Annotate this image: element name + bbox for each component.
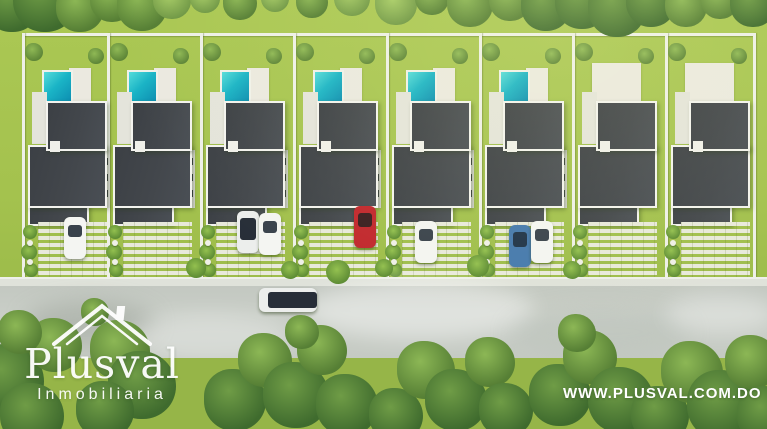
entry-step (135, 141, 145, 152)
car-white (415, 221, 437, 263)
stone (112, 240, 118, 246)
street-bush (326, 260, 350, 284)
lot-fence (753, 33, 756, 277)
palm-tree (203, 43, 221, 61)
stone (670, 259, 676, 265)
palm-tree (359, 48, 375, 64)
palm-tree (482, 43, 500, 61)
palm-tree (110, 43, 128, 61)
stone (27, 259, 33, 265)
logo-subtitle: Inmobiliaria (22, 386, 182, 404)
entry-step (693, 141, 703, 152)
bush (294, 225, 308, 239)
tree (465, 337, 515, 387)
bush (667, 263, 681, 277)
house-roof-lower (28, 145, 107, 208)
street-bush (375, 259, 393, 277)
aerial-render: Plusval Inmobiliaria WWW.PLUSVAL.COM.DO (0, 0, 767, 429)
entry-step (507, 141, 517, 152)
stone (577, 240, 583, 246)
car-glass (419, 229, 433, 242)
bush (24, 263, 38, 277)
lot-fence (572, 33, 575, 277)
tree (296, 0, 328, 18)
tree (447, 0, 493, 27)
tree (730, 0, 767, 27)
palm-tree (575, 43, 593, 61)
lot-fence (386, 33, 389, 277)
stone (670, 240, 676, 246)
house-roof-lower (299, 145, 378, 208)
bush (666, 225, 680, 239)
street-bush (186, 258, 206, 278)
cloud-shadow (305, 281, 535, 339)
car-white (259, 213, 281, 255)
palm-tree (638, 48, 654, 64)
tree (285, 315, 319, 349)
house-roof-lower (113, 145, 192, 208)
entry-step (414, 141, 424, 152)
side-patio (117, 92, 132, 144)
palm-tree (88, 48, 104, 64)
pool-deck (685, 63, 734, 101)
side-patio (210, 92, 225, 144)
street-bush (563, 261, 581, 279)
bush (571, 244, 587, 260)
entry-step (50, 141, 60, 152)
car-glass (535, 229, 549, 242)
stone (205, 259, 211, 265)
palm-tree (452, 48, 468, 64)
tree (375, 0, 417, 25)
car-white-glass (259, 288, 317, 312)
stone (298, 240, 304, 246)
car-glass (240, 218, 255, 240)
palm-tree (545, 48, 561, 64)
side-patio (675, 92, 690, 144)
bush (106, 244, 122, 260)
side-patio (32, 92, 47, 144)
bush (385, 244, 401, 260)
palm-tree (668, 43, 686, 61)
tree (415, 0, 449, 15)
side-patio (489, 92, 504, 144)
side-patio (396, 92, 411, 144)
pool-deck (592, 63, 641, 101)
palm-tree (25, 43, 43, 61)
bush (387, 225, 401, 239)
cloud-shadow (665, 294, 767, 334)
stone (27, 240, 33, 246)
car-white (64, 217, 86, 259)
bush (573, 225, 587, 239)
lot-fence (293, 33, 296, 277)
stone (484, 240, 490, 246)
house-roof-lower (485, 145, 564, 208)
palm-tree (731, 48, 747, 64)
car-glass (358, 213, 372, 227)
driveway (123, 222, 192, 279)
lot-fence (22, 33, 25, 277)
bush (292, 244, 308, 260)
lot-fence (200, 33, 203, 277)
palm-tree (296, 43, 314, 61)
house-roof-lower (671, 145, 750, 208)
stone (205, 240, 211, 246)
house-roof-lower (206, 145, 285, 208)
car-red (354, 206, 376, 248)
website-url: WWW.PLUSVAL.COM.DO (563, 385, 762, 402)
car-glass (263, 221, 277, 234)
bush (199, 244, 215, 260)
entry-step (228, 141, 238, 152)
tree (725, 335, 767, 389)
street-bush (467, 255, 489, 277)
street-bush (281, 261, 299, 279)
stone (112, 259, 118, 265)
palm-tree (266, 48, 282, 64)
car-white-glass (237, 211, 259, 253)
bush (201, 225, 215, 239)
house-roof-lower (392, 145, 471, 208)
tree (558, 314, 596, 352)
palm-tree (389, 43, 407, 61)
car-blue (509, 225, 531, 267)
palm-tree (173, 48, 189, 64)
bush (108, 225, 122, 239)
car-glass (268, 292, 316, 309)
plusval-logo: Plusval Inmobiliaria (22, 298, 182, 404)
car-white (531, 221, 553, 263)
lot-fence (665, 33, 668, 277)
tree (261, 0, 289, 12)
side-patio (582, 92, 597, 144)
bush (23, 225, 37, 239)
logo-title: Plusval (22, 346, 182, 382)
entry-step (600, 141, 610, 152)
stone (391, 240, 397, 246)
bush (480, 225, 494, 239)
side-patio (303, 92, 318, 144)
tree (190, 0, 220, 13)
tree (334, 0, 370, 16)
house-roof-lower (578, 145, 657, 208)
stone (298, 259, 304, 265)
driveway (588, 222, 657, 279)
bush (109, 263, 123, 277)
car-glass (68, 225, 82, 238)
entry-step (321, 141, 331, 152)
tree (223, 0, 257, 20)
car-glass (513, 232, 528, 247)
driveway (681, 222, 750, 279)
lot-fence (479, 33, 482, 277)
bush (21, 244, 37, 260)
roof-icon (50, 298, 154, 346)
bush (664, 244, 680, 260)
